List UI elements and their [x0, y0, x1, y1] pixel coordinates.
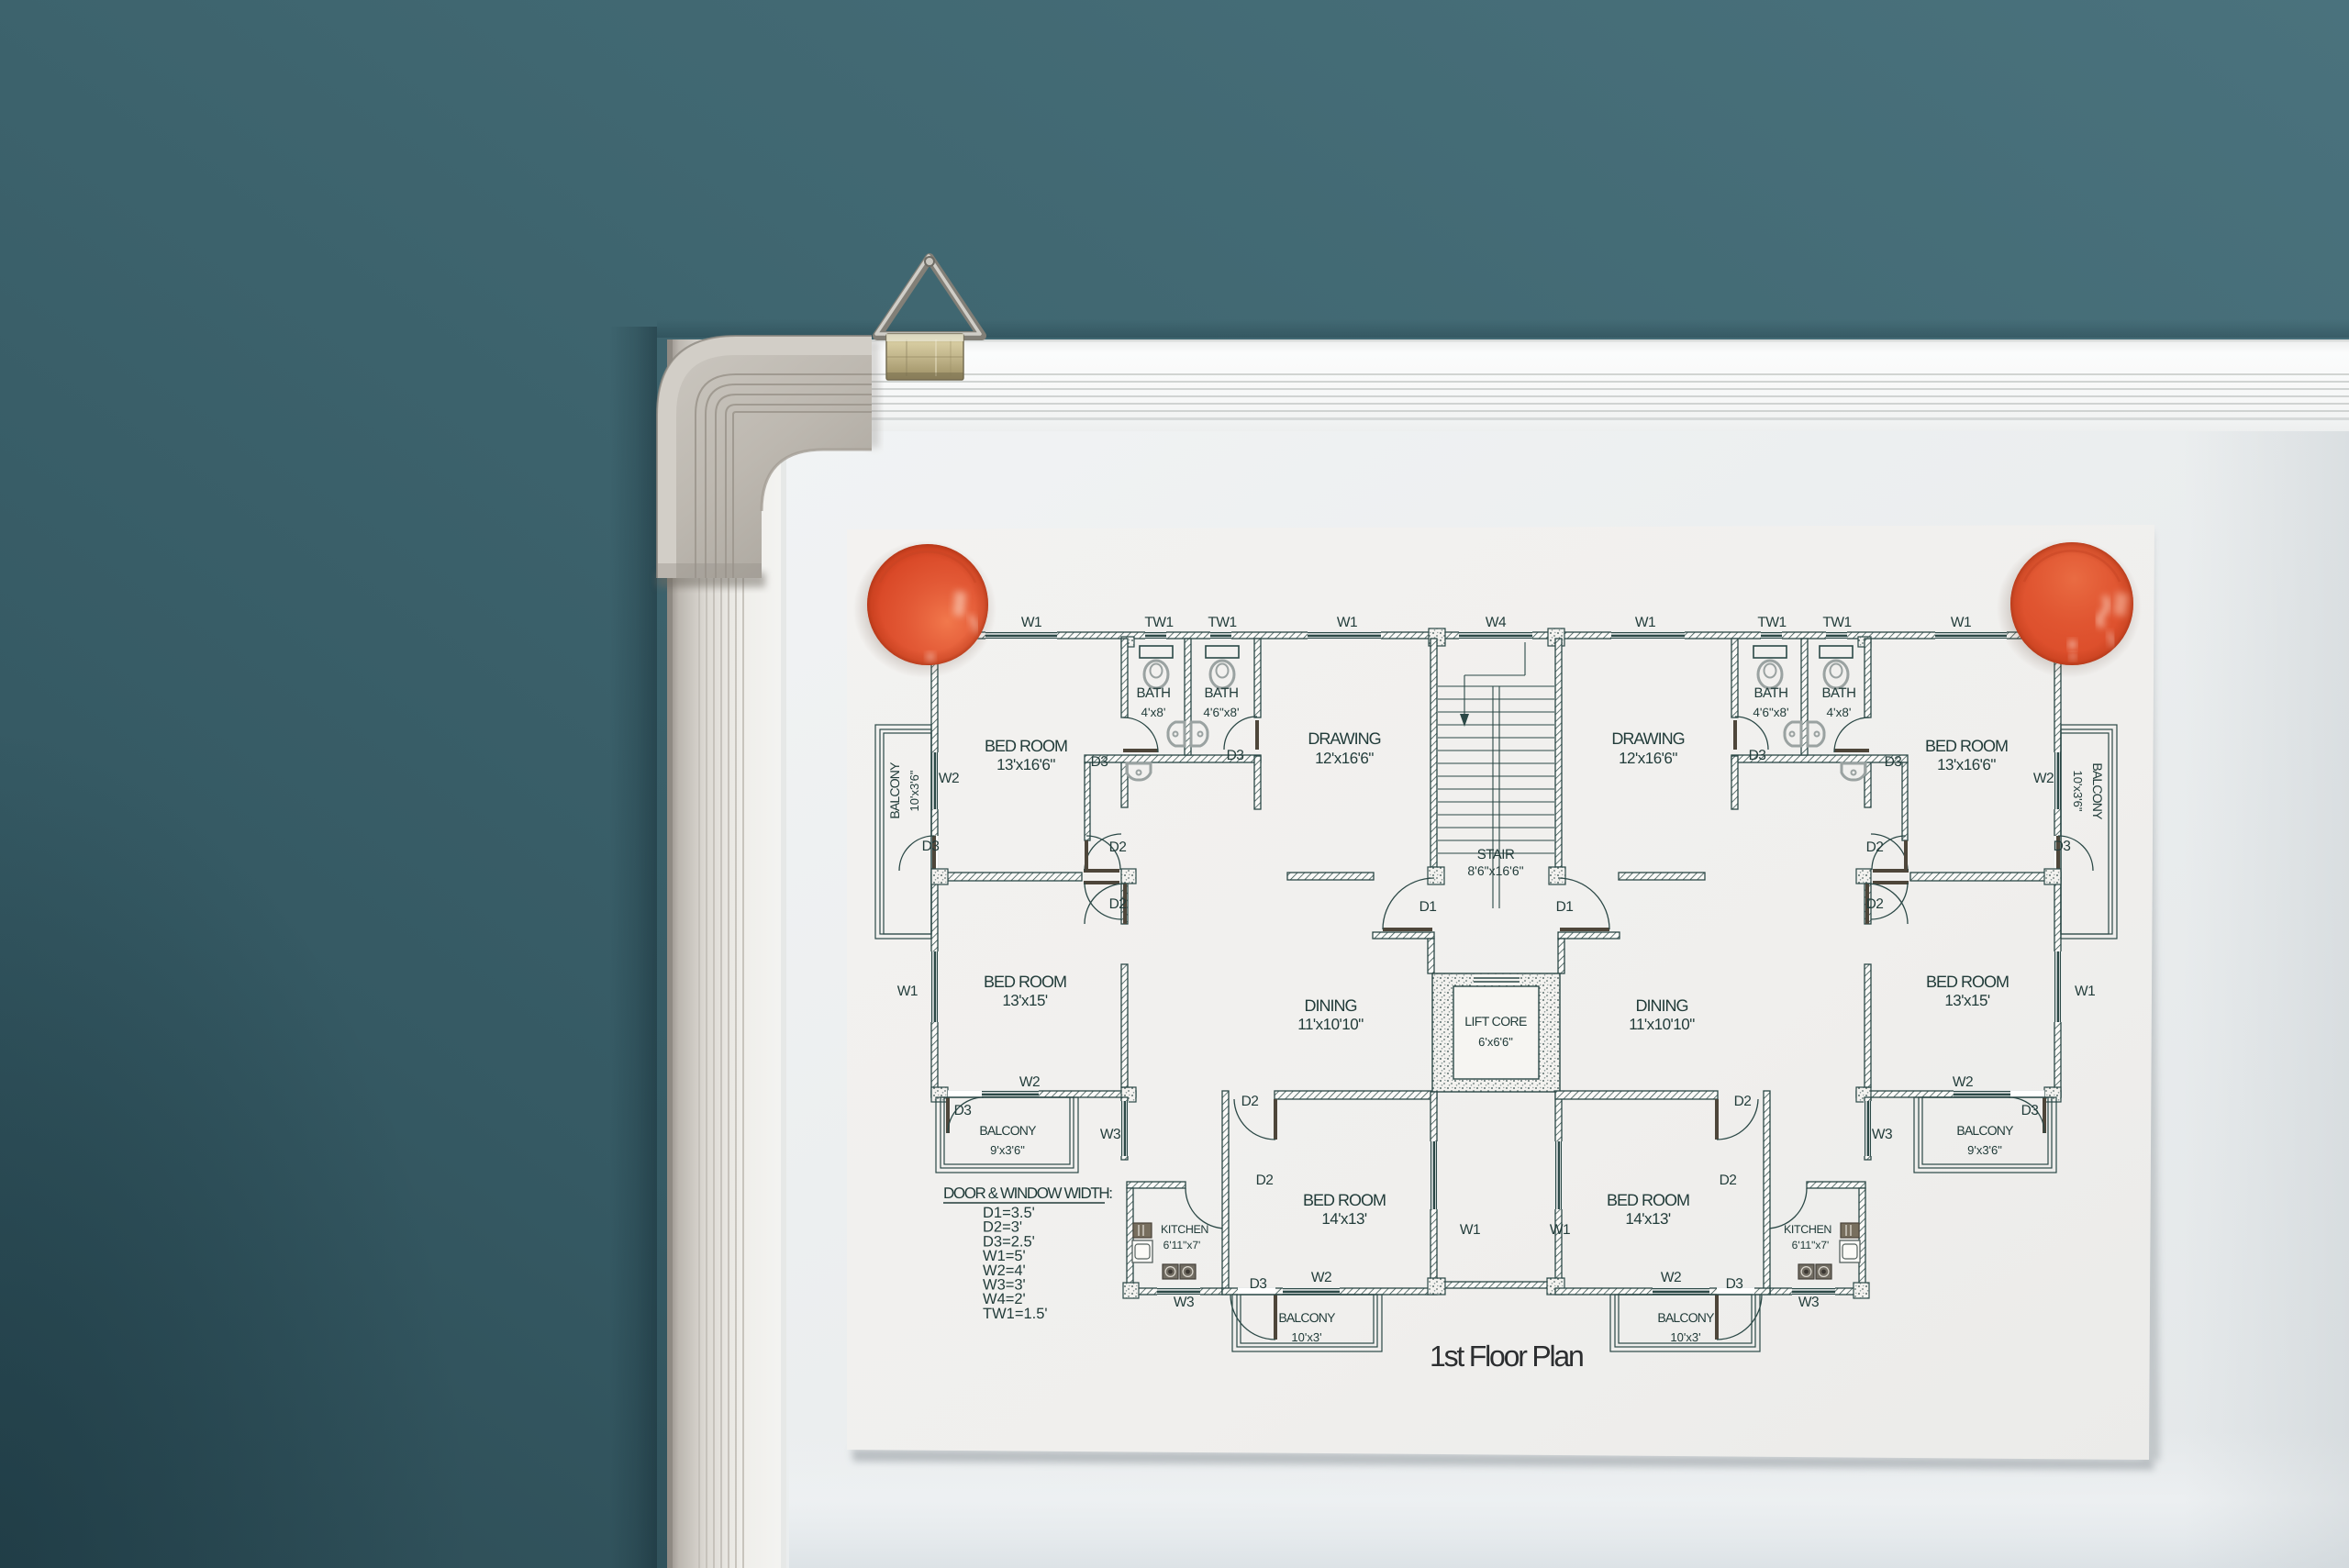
svg-text:TW1: TW1 [1822, 615, 1851, 630]
svg-text:D3: D3 [2054, 839, 2071, 854]
svg-text:TW1=1.5': TW1=1.5' [983, 1306, 1048, 1322]
svg-text:BATH: BATH [1205, 685, 1239, 701]
svg-text:KITCHEN: KITCHEN [1161, 1223, 1208, 1236]
svg-text:W1: W1 [1951, 615, 1971, 630]
svg-text:BED ROOM: BED ROOM [985, 737, 1067, 755]
svg-text:D2: D2 [1109, 896, 1127, 912]
svg-text:D2: D2 [1866, 896, 1884, 912]
svg-text:D2: D2 [1256, 1173, 1274, 1188]
svg-text:BALCONY: BALCONY [979, 1123, 1037, 1138]
svg-text:W2: W2 [1953, 1074, 1973, 1090]
svg-text:D2: D2 [1241, 1094, 1259, 1109]
svg-text:BATH: BATH [1822, 685, 1856, 701]
svg-text:10'x3': 10'x3' [1291, 1330, 1321, 1344]
svg-text:TW1: TW1 [1144, 615, 1173, 630]
svg-text:W1: W1 [1635, 615, 1655, 630]
svg-text:D3: D3 [1227, 748, 1244, 763]
svg-text:BALCONY: BALCONY [1956, 1123, 2014, 1138]
svg-text:6'11"x7': 6'11"x7' [1792, 1239, 1830, 1251]
svg-text:W3: W3 [1100, 1127, 1120, 1142]
svg-text:10'x3'6": 10'x3'6" [2071, 771, 2085, 812]
svg-text:W1: W1 [2075, 984, 2095, 999]
svg-text:W1: W1 [1021, 615, 1041, 630]
svg-text:BATH: BATH [1754, 685, 1788, 701]
svg-text:DRAWING: DRAWING [1308, 729, 1380, 748]
svg-text:W1: W1 [1460, 1222, 1480, 1238]
svg-text:W3: W3 [1174, 1295, 1194, 1310]
svg-text:D1: D1 [1556, 899, 1574, 915]
svg-text:9'x3'6": 9'x3'6" [990, 1143, 1025, 1157]
svg-text:D3: D3 [1250, 1276, 1267, 1292]
svg-text:W2: W2 [939, 771, 959, 786]
svg-text:10'x3'6": 10'x3'6" [907, 770, 921, 811]
svg-text:D3: D3 [1885, 754, 1902, 770]
svg-text:12'x16'6": 12'x16'6" [1619, 750, 1677, 767]
svg-text:W3: W3 [1872, 1127, 1892, 1142]
svg-text:13'x16'6": 13'x16'6" [996, 756, 1055, 773]
svg-text:W1: W1 [897, 984, 918, 999]
svg-text:6'11"x7': 6'11"x7' [1163, 1239, 1201, 1251]
svg-text:W2: W2 [1311, 1270, 1331, 1285]
svg-text:STAIR: STAIR [1477, 847, 1515, 862]
svg-text:DRAWING: DRAWING [1611, 729, 1684, 748]
svg-text:BED ROOM: BED ROOM [1926, 973, 2009, 991]
svg-text:D2: D2 [1734, 1094, 1752, 1109]
svg-text:W2: W2 [1019, 1074, 1040, 1090]
svg-text:D3: D3 [1749, 748, 1766, 763]
svg-text:W3: W3 [1798, 1295, 1819, 1310]
svg-text:13'x15': 13'x15' [1944, 992, 1990, 1009]
svg-text:W2: W2 [2033, 771, 2054, 786]
svg-text:BED ROOM: BED ROOM [1607, 1191, 1689, 1209]
svg-text:9'x3'6": 9'x3'6" [1967, 1143, 2002, 1157]
svg-text:W1: W1 [1337, 615, 1357, 630]
svg-text:DINING: DINING [1305, 996, 1357, 1015]
svg-text:DINING: DINING [1636, 996, 1688, 1015]
svg-text:BALCONY: BALCONY [1657, 1310, 1715, 1325]
svg-text:LIFT CORE: LIFT CORE [1464, 1014, 1527, 1029]
svg-text:DOOR & WINDOW WIDTH:: DOOR & WINDOW WIDTH: [943, 1184, 1112, 1202]
svg-text:D2: D2 [1109, 840, 1127, 855]
svg-text:D3: D3 [1091, 754, 1108, 770]
svg-text:4'6"x8': 4'6"x8' [1203, 706, 1239, 719]
svg-text:11'x10'10": 11'x10'10" [1297, 1016, 1364, 1033]
svg-text:13'x15': 13'x15' [1002, 992, 1048, 1009]
svg-text:14'x13': 14'x13' [1625, 1210, 1671, 1228]
svg-text:D3: D3 [922, 839, 940, 854]
svg-text:D2: D2 [1866, 840, 1884, 855]
svg-text:TW1: TW1 [1757, 615, 1786, 630]
svg-text:8'6"x16'6": 8'6"x16'6" [1467, 863, 1523, 878]
svg-text:11'x10'10": 11'x10'10" [1629, 1016, 1695, 1033]
svg-text:BALCONY: BALCONY [887, 762, 902, 819]
svg-text:BATH: BATH [1137, 685, 1171, 701]
svg-text:BED ROOM: BED ROOM [1303, 1191, 1386, 1209]
svg-text:TW1: TW1 [1208, 615, 1236, 630]
svg-text:D3: D3 [1726, 1276, 1743, 1292]
svg-text:W1: W1 [1550, 1222, 1570, 1238]
svg-text:10'x3': 10'x3' [1670, 1330, 1700, 1344]
svg-text:BED ROOM: BED ROOM [1925, 737, 2008, 755]
svg-text:BALCONY: BALCONY [2090, 762, 2105, 820]
svg-text:1st Floor Plan: 1st Floor Plan [1430, 1340, 1583, 1373]
svg-text:D2: D2 [1720, 1173, 1737, 1188]
svg-text:W2: W2 [1661, 1270, 1681, 1285]
svg-text:D1: D1 [1419, 899, 1437, 915]
svg-text:6'x6'6": 6'x6'6" [1478, 1035, 1513, 1049]
svg-text:W4: W4 [1486, 615, 1507, 630]
svg-text:14'x13': 14'x13' [1321, 1210, 1367, 1228]
svg-text:BED ROOM: BED ROOM [984, 973, 1066, 991]
svg-text:D3: D3 [2021, 1103, 2039, 1118]
svg-text:13'x16'6": 13'x16'6" [1937, 756, 1996, 773]
svg-text:4'6"x8': 4'6"x8' [1753, 706, 1788, 719]
svg-text:D3: D3 [954, 1103, 972, 1118]
svg-text:KITCHEN: KITCHEN [1784, 1223, 1831, 1236]
svg-text:BALCONY: BALCONY [1278, 1310, 1336, 1325]
svg-text:4'x8': 4'x8' [1827, 706, 1852, 719]
svg-text:12'x16'6": 12'x16'6" [1315, 750, 1374, 767]
svg-text:4'x8': 4'x8' [1141, 706, 1166, 719]
